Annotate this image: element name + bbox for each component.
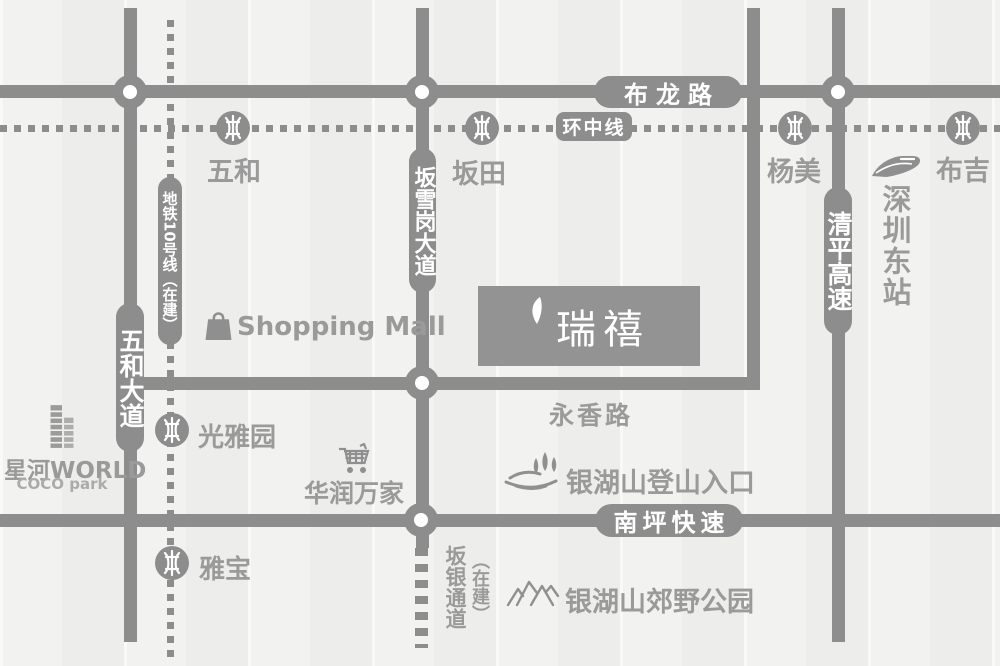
station-yangmei [777, 110, 813, 146]
metro-logo-icon [945, 131, 981, 150]
road-label-wuhe-avenue: 五和大道 [116, 303, 144, 452]
road-label-banxuegang: 坂雪岗大道 [409, 148, 436, 293]
junction-banxuegang-bulong [405, 75, 439, 109]
location-map: 布龙路 环中线 南坪快速 五和大道 地铁10号线（在建） 坂雪岗大道 清平高速 … [0, 0, 1000, 666]
road-label-qingping: 清平高速 [824, 187, 852, 335]
metro-logo-icon [154, 566, 190, 585]
station-label-yabao: 雅宝 [199, 549, 251, 586]
train-icon [868, 152, 924, 188]
metro-huanzhong-line [0, 125, 1000, 132]
station-label-bantian: 坂田 [452, 152, 506, 191]
road-label-banyin-status: （在建） [466, 551, 492, 623]
mountains-icon [506, 578, 566, 612]
station-bantian [464, 110, 500, 146]
shopping-mall-label: Shopping Mall [237, 312, 446, 342]
station-buji [945, 110, 981, 146]
metro-logo-icon [215, 131, 251, 150]
station-wuhe [215, 110, 251, 146]
shenzhen-east-station-label: 深圳东站 [874, 184, 916, 308]
station-yabao [154, 545, 190, 581]
station-label-yangmei: 杨美 [767, 150, 821, 189]
junction-banxuegang-nanping [404, 503, 438, 537]
leaf-icon [528, 296, 550, 330]
road-yongxiang-north-segment [747, 8, 760, 390]
road-yongxiang [130, 377, 760, 390]
huarun-vanguard-label: 华润万家 [302, 474, 406, 510]
pond-trees-icon [502, 448, 564, 496]
road-label-nanping: 南坪快速 [595, 504, 743, 537]
hiking-entrance-label: 银湖山登山入口 [566, 461, 755, 500]
road-label-huanzhong: 环中线 [556, 112, 632, 141]
station-label-buji: 布吉 [936, 149, 990, 188]
metro-logo-icon [154, 433, 190, 452]
road-nanping-expressway [0, 514, 1000, 527]
junction-wuhe-bulong [113, 75, 147, 109]
country-park-label: 银湖山郊野公园 [565, 580, 754, 619]
metro-logo-icon [777, 131, 813, 150]
shopping-bag-icon [205, 308, 232, 347]
road-banyin-channel-under-construction [415, 548, 428, 648]
junction-banxuegang-yongxiang [405, 366, 439, 400]
station-guangyayuan [154, 412, 190, 448]
coco-park-label: COCO park [4, 475, 120, 493]
road-label-bulong: 布龙路 [594, 76, 742, 108]
metro-logo-icon [464, 131, 500, 150]
project-name: 瑞禧 [556, 297, 650, 355]
station-label-guangyayuan: 光雅园 [198, 417, 276, 454]
station-label-wuhe: 五和 [207, 150, 261, 189]
junction-qingping-bulong [821, 75, 855, 109]
road-label-metro-line10: 地铁10号线（在建） [158, 177, 182, 345]
road-label-yongxiang: 永香路 [549, 396, 633, 432]
buildings-icon [44, 402, 80, 454]
project-logo-box: 瑞禧 [478, 286, 700, 366]
